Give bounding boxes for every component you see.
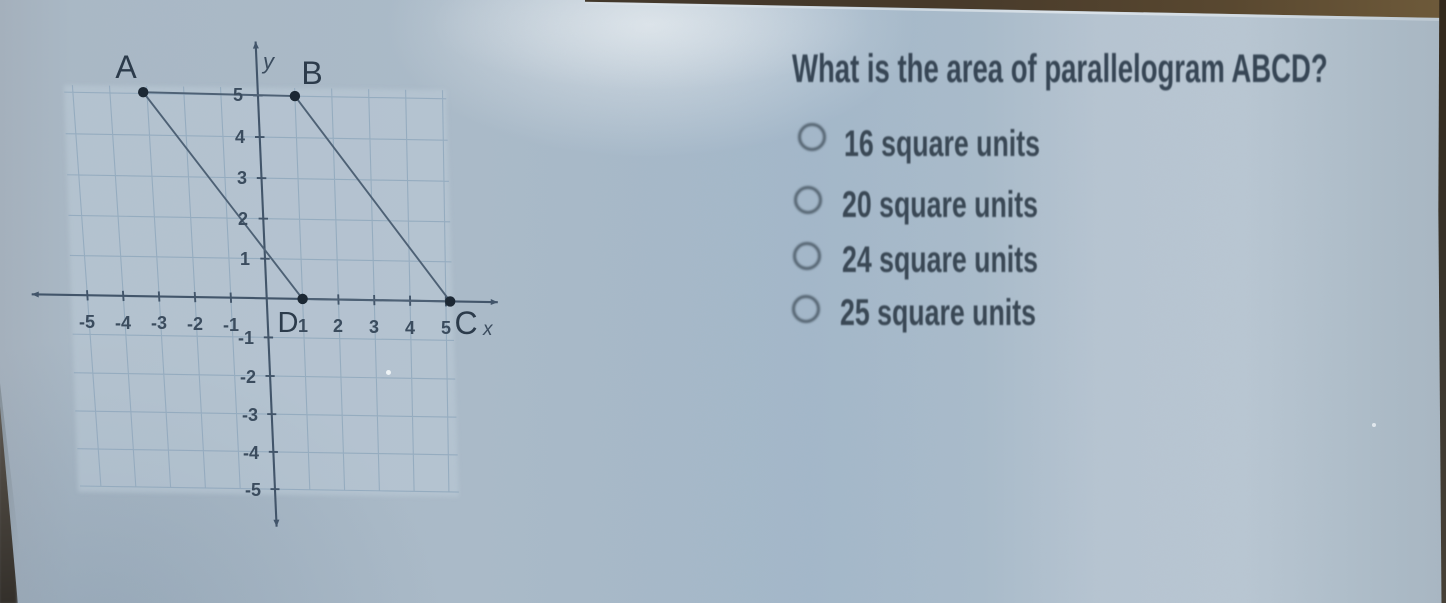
svg-text:-4: -4 (243, 443, 259, 463)
svg-text:-1: -1 (223, 315, 239, 335)
svg-text:B: B (301, 55, 322, 91)
svg-text:-2: -2 (187, 314, 203, 334)
svg-text:2: 2 (238, 209, 248, 229)
svg-text:4: 4 (235, 127, 245, 147)
svg-text:2: 2 (333, 316, 343, 336)
svg-text:1: 1 (240, 249, 250, 269)
svg-text:-3: -3 (151, 313, 167, 333)
svg-text:-5: -5 (245, 480, 261, 500)
svg-text:-4: -4 (115, 313, 131, 333)
svg-text:-5: -5 (79, 312, 95, 332)
svg-text:1: 1 (298, 316, 308, 336)
svg-text:-1: -1 (238, 328, 254, 348)
svg-text:x: x (482, 319, 494, 340)
svg-text:4: 4 (405, 318, 415, 338)
svg-text:D: D (278, 307, 299, 339)
svg-text:5: 5 (233, 85, 243, 105)
svg-text:3: 3 (369, 317, 379, 337)
svg-text:A: A (115, 49, 137, 85)
svg-text:3: 3 (237, 168, 247, 188)
svg-text:-2: -2 (240, 367, 256, 387)
svg-text:C: C (454, 305, 477, 341)
svg-text:-3: -3 (242, 405, 258, 425)
svg-text:y: y (261, 49, 276, 74)
svg-text:5: 5 (441, 318, 451, 338)
